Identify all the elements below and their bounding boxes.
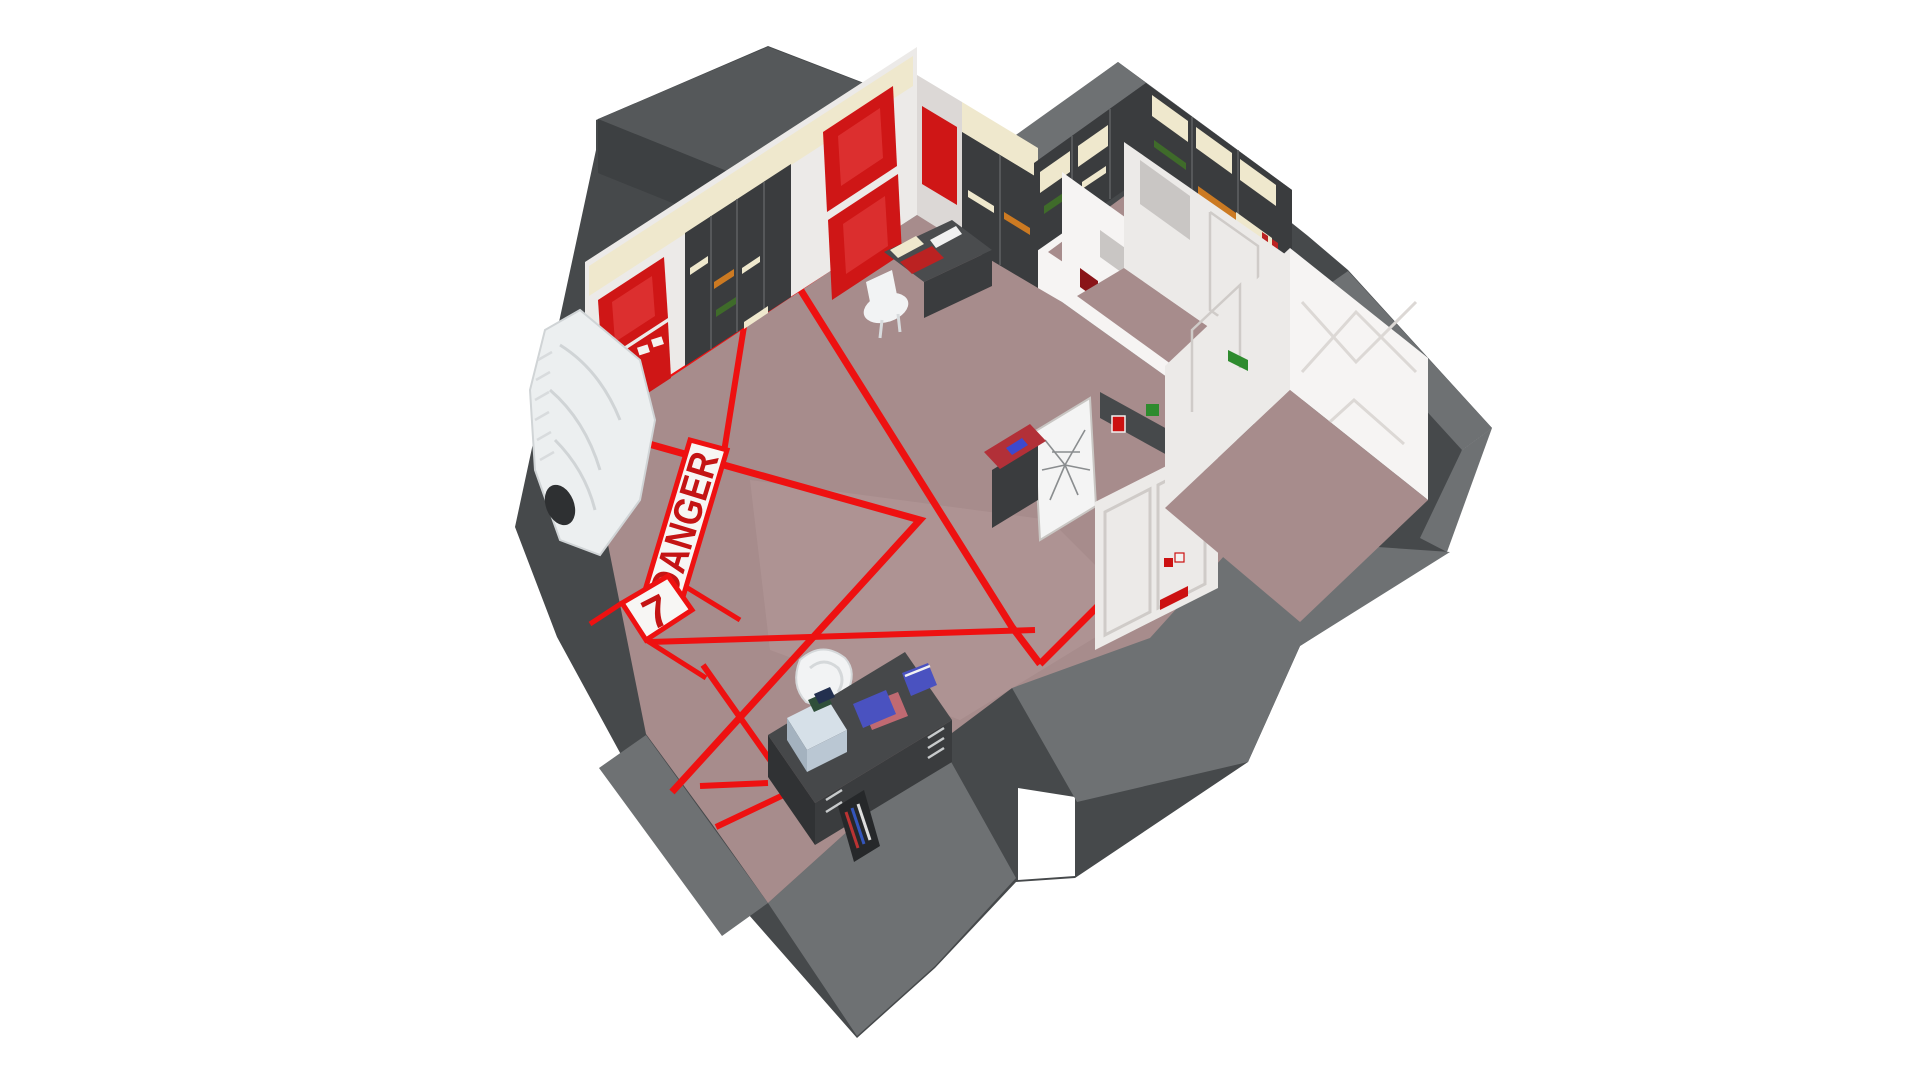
background-notch-bottom (1018, 788, 1075, 880)
red-button (1112, 416, 1125, 432)
hazard-line (700, 783, 768, 786)
warning-sign (1164, 558, 1173, 567)
warning-sign (1175, 553, 1184, 562)
green-button (1146, 404, 1159, 416)
chair-leg (898, 314, 900, 332)
chair-leg (880, 320, 882, 338)
isometric-facility-render: DANGER 7 (0, 0, 1920, 1080)
render-canvas: DANGER 7 (0, 0, 1920, 1080)
